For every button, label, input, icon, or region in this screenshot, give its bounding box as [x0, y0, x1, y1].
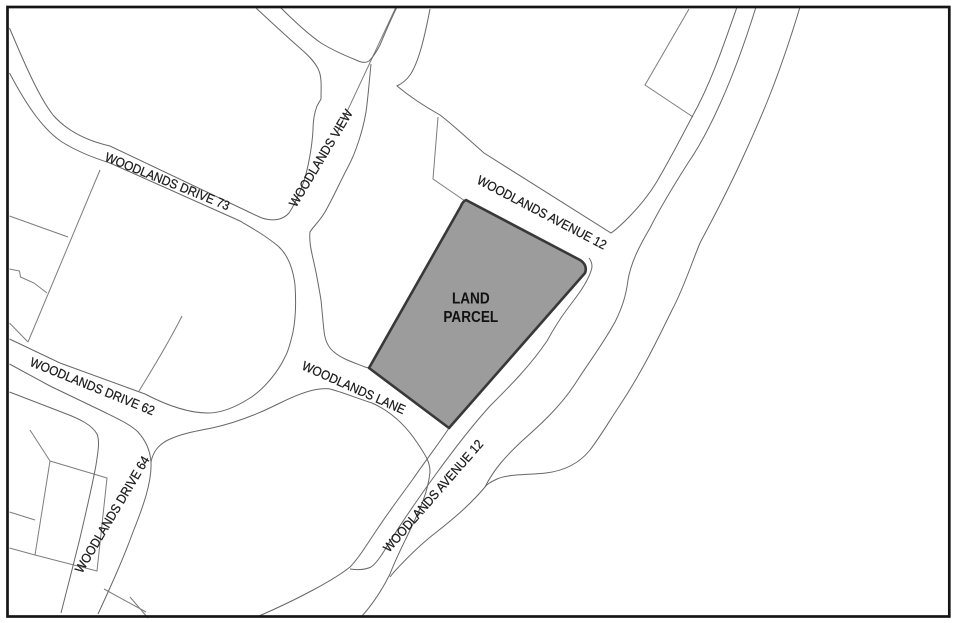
svg-text:PARCEL: PARCEL	[443, 309, 498, 326]
svg-text:LAND: LAND	[452, 291, 490, 308]
